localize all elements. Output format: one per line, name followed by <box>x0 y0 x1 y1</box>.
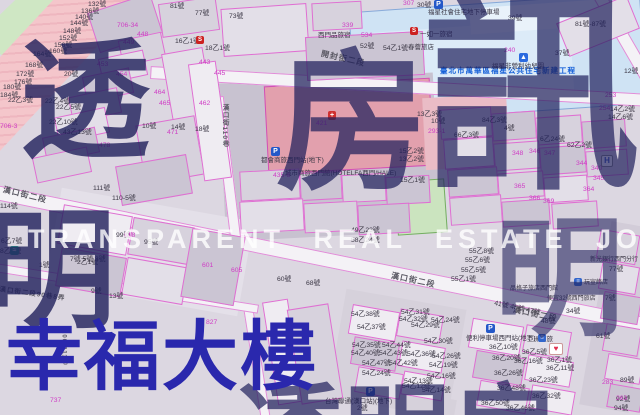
map-label: 37號 <box>555 50 569 57</box>
map-label: 55乙1號 <box>451 276 476 283</box>
map-label: 43乙13號 <box>63 129 92 136</box>
map-label: 36乙23號 <box>529 377 558 384</box>
map-label: 62乙2號 <box>567 142 592 149</box>
map-label: 706-34 <box>117 22 138 29</box>
map-label: 36乙10號 <box>489 344 518 351</box>
map-label: 春薈旅店 <box>408 44 434 51</box>
map-label: 1號 <box>39 262 50 269</box>
map-label: 81號-87號 <box>575 21 606 28</box>
map-label: 54乙37號 <box>357 324 386 331</box>
map-label: 15乙1號 <box>400 177 425 184</box>
tag-icon[interactable]: ≡ <box>574 278 582 286</box>
map-label: 77號 <box>609 266 623 273</box>
map-label: 30號 <box>417 2 431 9</box>
map-label: 新光銀行西門分行 <box>590 257 638 264</box>
map-label: 漢口街110巷 <box>221 104 228 148</box>
map-label: 6乙7號 <box>1 238 22 245</box>
map-label: 10號 <box>142 123 156 130</box>
parcel <box>158 0 220 38</box>
parking-icon[interactable]: P <box>434 0 443 9</box>
map-label: 114號 <box>0 203 18 210</box>
map-label: 漢口街二段90巷8弄 <box>0 286 66 302</box>
map-label: 13乙2號 <box>399 156 424 163</box>
map-label: 449 <box>123 39 134 46</box>
map-label: 18乙1號 <box>205 45 230 52</box>
map-label: 52號 <box>360 43 374 50</box>
map-label: 55乙8號 <box>469 248 494 255</box>
s-badge-icon[interactable]: S <box>410 27 418 35</box>
map-label: 54乙44號 <box>382 342 411 349</box>
map-label: 54乙29號 <box>411 322 440 329</box>
parcel <box>32 146 92 183</box>
map-label: 618 <box>124 232 135 239</box>
map-label: 346 <box>529 148 540 155</box>
map-label: 61號 <box>596 333 610 340</box>
map-label: 7號 5號 3號 <box>70 256 106 263</box>
map-label: 471 <box>167 129 178 136</box>
map-label: 22乙5號 <box>56 104 81 111</box>
parcel <box>341 173 386 203</box>
map-label: 54乙30號 <box>424 338 453 345</box>
map-label: 68號 <box>306 280 320 287</box>
map-label: 36乙48號 <box>497 385 526 392</box>
map-label: 18號 <box>195 126 209 133</box>
map-label: 263 <box>616 395 627 402</box>
map-label: 15乙2號 <box>399 148 424 155</box>
map-label: 便利停車場西門站(地下) <box>466 335 535 342</box>
map-label: 2號 <box>357 405 368 412</box>
map-label: 344 <box>576 160 587 167</box>
parcel <box>443 136 495 169</box>
map-label: 240 <box>504 47 515 54</box>
map-label: 348 <box>512 150 523 157</box>
parcel <box>449 194 503 226</box>
map-label: 都會商旅西門站(地下) <box>261 157 324 164</box>
map-label: 106-311巷 <box>60 330 67 366</box>
map-label: 13號 <box>109 293 123 300</box>
map-label: 73號 <box>229 13 243 20</box>
map-canvas[interactable]: 開封街二段漢口街二段漢口街二段漢口街二段漢口街二段90巷8弄漢口街110巷106… <box>0 0 640 415</box>
map-label: 77號 <box>195 10 209 17</box>
map-label: 453 <box>97 61 108 68</box>
map-label: 164號 <box>33 51 51 58</box>
map-label: 254 <box>599 105 610 112</box>
map-label: 55乙6號 <box>465 257 490 264</box>
map-label: 一如一旅宿 <box>420 31 453 38</box>
map-label: 品格子旅店西門館 <box>510 286 558 293</box>
map-label: 36乙26號 <box>494 370 523 377</box>
map-label: 54乙38號 <box>351 311 380 318</box>
map-label: 54乙14號 <box>422 387 451 394</box>
map-label: 55乙5號 <box>461 267 486 274</box>
map-label: 36乙32號 <box>532 393 561 400</box>
parcel <box>447 166 499 197</box>
map-label: 95號 <box>144 239 158 246</box>
map-label: 347 <box>544 150 555 157</box>
map-label: 14乙6號 <box>608 114 633 121</box>
map-label: 49乙23號 <box>351 227 380 234</box>
map-label: 144號 <box>70 20 88 27</box>
map-label: 54乙43號 <box>379 350 408 357</box>
map-label: 168號 <box>25 62 43 69</box>
map-label: 307 <box>403 0 414 7</box>
map-label: 54乙47號 <box>362 360 391 367</box>
map-label: 54乙24號 <box>362 370 391 377</box>
map-label: 西門品旅宿 <box>318 32 351 39</box>
map-label: 421 <box>316 120 327 127</box>
map-label: 福星社會住宅地下停車場 <box>428 9 500 16</box>
map-label: 445 <box>214 70 225 77</box>
map-label: 464 <box>154 89 165 96</box>
parking-icon[interactable]: P <box>486 324 495 333</box>
map-label: 339 <box>342 22 353 29</box>
map-label: 94號 <box>614 405 628 412</box>
map-label: 180號 <box>3 84 21 91</box>
map-label: 364 <box>583 186 594 193</box>
poi-marker-icon[interactable]: + <box>328 111 336 120</box>
map-label: 706-3 <box>0 123 17 130</box>
map-label: 34號 <box>566 308 580 315</box>
map-label: 283 <box>602 379 613 386</box>
map-label: 玩宣飾店 <box>584 280 608 287</box>
map-label: 58乙24號 <box>351 237 380 244</box>
map-label: 54乙26號 <box>432 353 461 360</box>
map-label: 39號 <box>508 15 522 22</box>
bank-icon[interactable]: ≈ <box>10 246 19 255</box>
map-label: 66乙3號 <box>454 132 479 139</box>
tag-icon[interactable]: ≡ <box>538 334 546 342</box>
map-label: 534 <box>361 32 372 39</box>
parking-icon[interactable]: P <box>271 147 280 156</box>
map-label: 89號 <box>620 377 634 384</box>
map-label: 54乙35號 <box>352 342 381 349</box>
map-label: 10號 <box>431 118 445 125</box>
map-label: 54乙19號 <box>429 362 458 369</box>
map-label: 36乙16號 <box>514 358 543 365</box>
hotel-icon[interactable]: H <box>601 155 613 167</box>
map-label: 城市商旅西門館(HOTELFA西門/HALE) <box>285 170 396 177</box>
map-label: 12號 <box>624 68 638 75</box>
map-label: 345 <box>593 175 604 182</box>
map-label: 4號 <box>504 125 515 132</box>
map-label: 293-1 <box>428 128 445 135</box>
map-label: 22乙10號 <box>49 119 78 126</box>
map-label: 84乙3號 <box>482 117 507 124</box>
parcel <box>551 200 599 229</box>
map-label: 448 <box>137 31 148 38</box>
parcel <box>239 198 305 233</box>
map-label: 110-5號 <box>112 195 136 202</box>
map-label: 478 <box>99 142 110 149</box>
map-label: 253 <box>605 92 616 99</box>
map-label: 36乙1號 <box>547 357 572 364</box>
map-label: 54乙1號 <box>383 45 408 52</box>
map-label: 160號 <box>49 48 67 55</box>
map-label: 54乙40號 <box>351 350 380 357</box>
map-label: 7號 <box>605 295 616 302</box>
map-label: 便宜32號西門旅店 <box>547 296 596 303</box>
map-label: 14乙2號 <box>610 106 635 113</box>
map-label: 6乙24號 <box>540 136 565 143</box>
map-label: 36乙11號 <box>546 365 574 372</box>
heart-icon[interactable]: ♥ <box>549 343 563 355</box>
map-label: 366 <box>529 195 540 202</box>
map-label: 22乙3號 <box>8 97 33 104</box>
s-badge-icon[interactable]: S <box>196 36 204 44</box>
map-label: 36乙46號 <box>506 405 535 412</box>
map-label: 81號 <box>170 3 184 10</box>
map-label: 36乙5號 <box>522 349 547 356</box>
map-label: 435-8 <box>273 172 290 179</box>
parcel <box>311 1 362 32</box>
map-label: 20號 <box>64 71 78 78</box>
map-label: 172號 <box>16 71 34 78</box>
map-label: 369 <box>543 198 554 205</box>
map-label: 111號 <box>93 185 110 192</box>
map-label: 605 <box>231 267 242 274</box>
school-icon[interactable]: ▲ <box>519 53 528 62</box>
map-label: 737 <box>50 397 61 404</box>
map-label: 827 <box>206 319 217 326</box>
map-label: 601 <box>202 262 213 269</box>
parcel <box>220 3 309 57</box>
map-label: 54乙42號 <box>389 360 418 367</box>
map-label: 443 <box>199 59 210 66</box>
map-label: 60號 <box>277 276 291 283</box>
map-label: 365 <box>514 183 525 190</box>
map-label: 9號 <box>91 288 102 295</box>
map-label: 462 <box>199 100 210 107</box>
parking-icon[interactable]: P <box>366 387 375 396</box>
map-label: 465 <box>159 100 170 107</box>
map-label: 福星非營利幼兒園 <box>492 63 544 70</box>
map-label: 454 <box>116 71 127 78</box>
map-label: 48號 <box>541 318 555 325</box>
